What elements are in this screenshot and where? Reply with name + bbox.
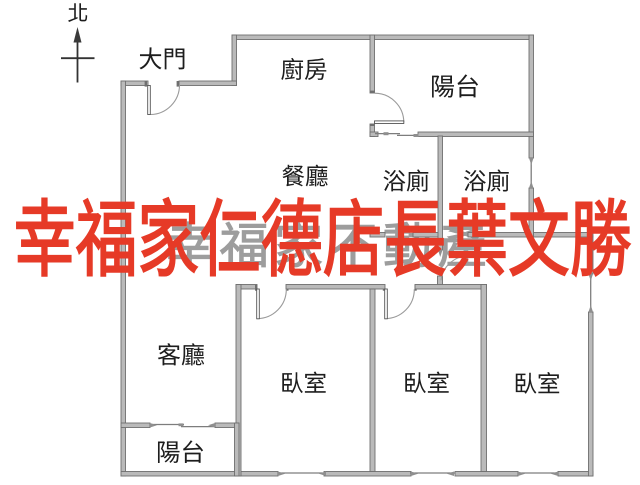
svg-text:臥室: 臥室 — [403, 364, 450, 398]
svg-text:臥室: 臥室 — [280, 364, 327, 398]
svg-text:客廳: 客廳 — [157, 336, 205, 371]
svg-text:臥室: 臥室 — [514, 365, 561, 399]
svg-text:廚房: 廚房 — [281, 51, 328, 85]
svg-text:幸福家仁德店長葉文勝: 幸福家仁德店長葉文勝 — [14, 172, 632, 294]
svg-text:大門: 大門 — [139, 40, 187, 75]
svg-text:陽台: 陽台 — [156, 434, 205, 469]
svg-text:北: 北 — [68, 0, 89, 28]
svg-text:陽台: 陽台 — [430, 67, 480, 103]
